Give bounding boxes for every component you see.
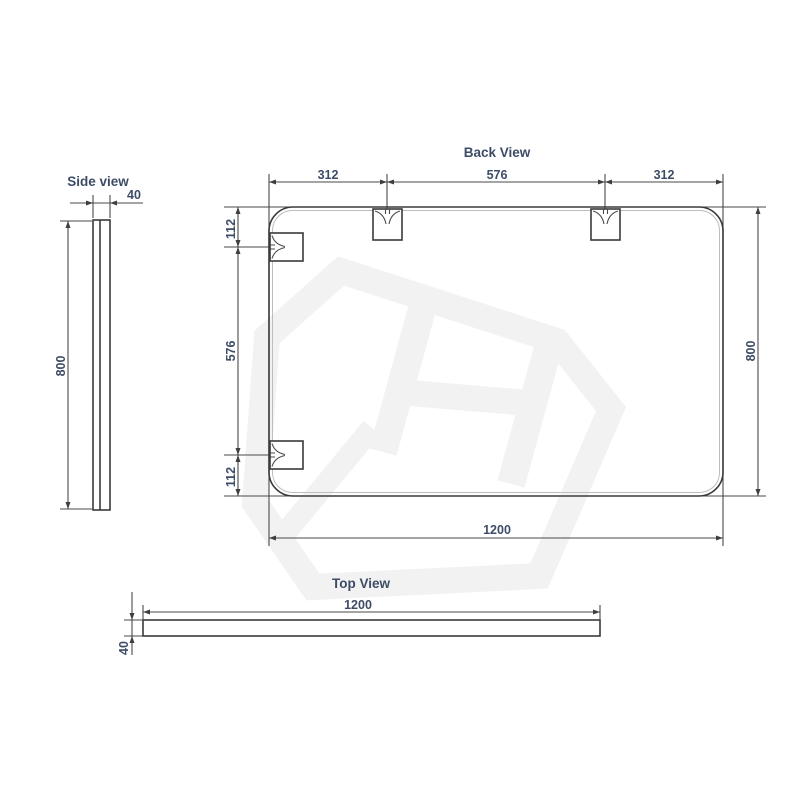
dim-top-width: 312 576 312 [269, 168, 723, 185]
hanger-bracket-left-upper [270, 233, 303, 261]
dim-side-height: 800 [54, 221, 92, 509]
dim-right-height: 800 [744, 207, 761, 496]
dim-label-112-upper: 112 [224, 219, 238, 239]
extension-lines [224, 174, 766, 546]
dim-label-1200-top: 1200 [344, 598, 372, 612]
dim-label-800-back: 800 [744, 341, 758, 362]
dim-label-312-right: 312 [654, 168, 675, 182]
dim-side-thickness: 40 [70, 188, 143, 218]
hanger-bracket-top-left [373, 209, 402, 240]
back-view-title: Back View [464, 145, 531, 160]
dim-topview-thickness: 40 [117, 592, 143, 655]
dim-bottom-width: 1200 [269, 523, 723, 541]
side-view-title: Side view [67, 174, 129, 189]
dim-topview-width: 1200 [143, 598, 600, 620]
technical-drawing: 312 576 312 112 576 112 800 [0, 0, 800, 800]
dim-label-112-lower: 112 [224, 467, 238, 487]
dim-label-1200-back: 1200 [483, 523, 511, 537]
top-view-outline [143, 620, 600, 636]
watermark-logo-icon [255, 271, 611, 587]
dim-label-312-left: 312 [318, 168, 339, 182]
dim-label-800-side: 800 [54, 356, 68, 377]
dim-label-40-top: 40 [117, 641, 131, 655]
dim-label-576-left: 576 [224, 341, 238, 362]
back-view: 312 576 312 112 576 112 800 [224, 145, 766, 546]
dim-label-40-side: 40 [127, 188, 141, 202]
spec-sheet: 312 576 312 112 576 112 800 [0, 0, 800, 800]
top-view-title: Top View [332, 576, 391, 591]
mirror-outline [269, 207, 723, 496]
dim-label-576-top: 576 [487, 168, 508, 182]
hanger-bracket-top-right [591, 209, 620, 240]
dim-left-height: 112 576 112 [224, 207, 241, 496]
side-view-outline [93, 220, 110, 510]
hanger-bracket-left-lower [270, 441, 303, 469]
side-view: 40 800 Side view [54, 174, 143, 510]
